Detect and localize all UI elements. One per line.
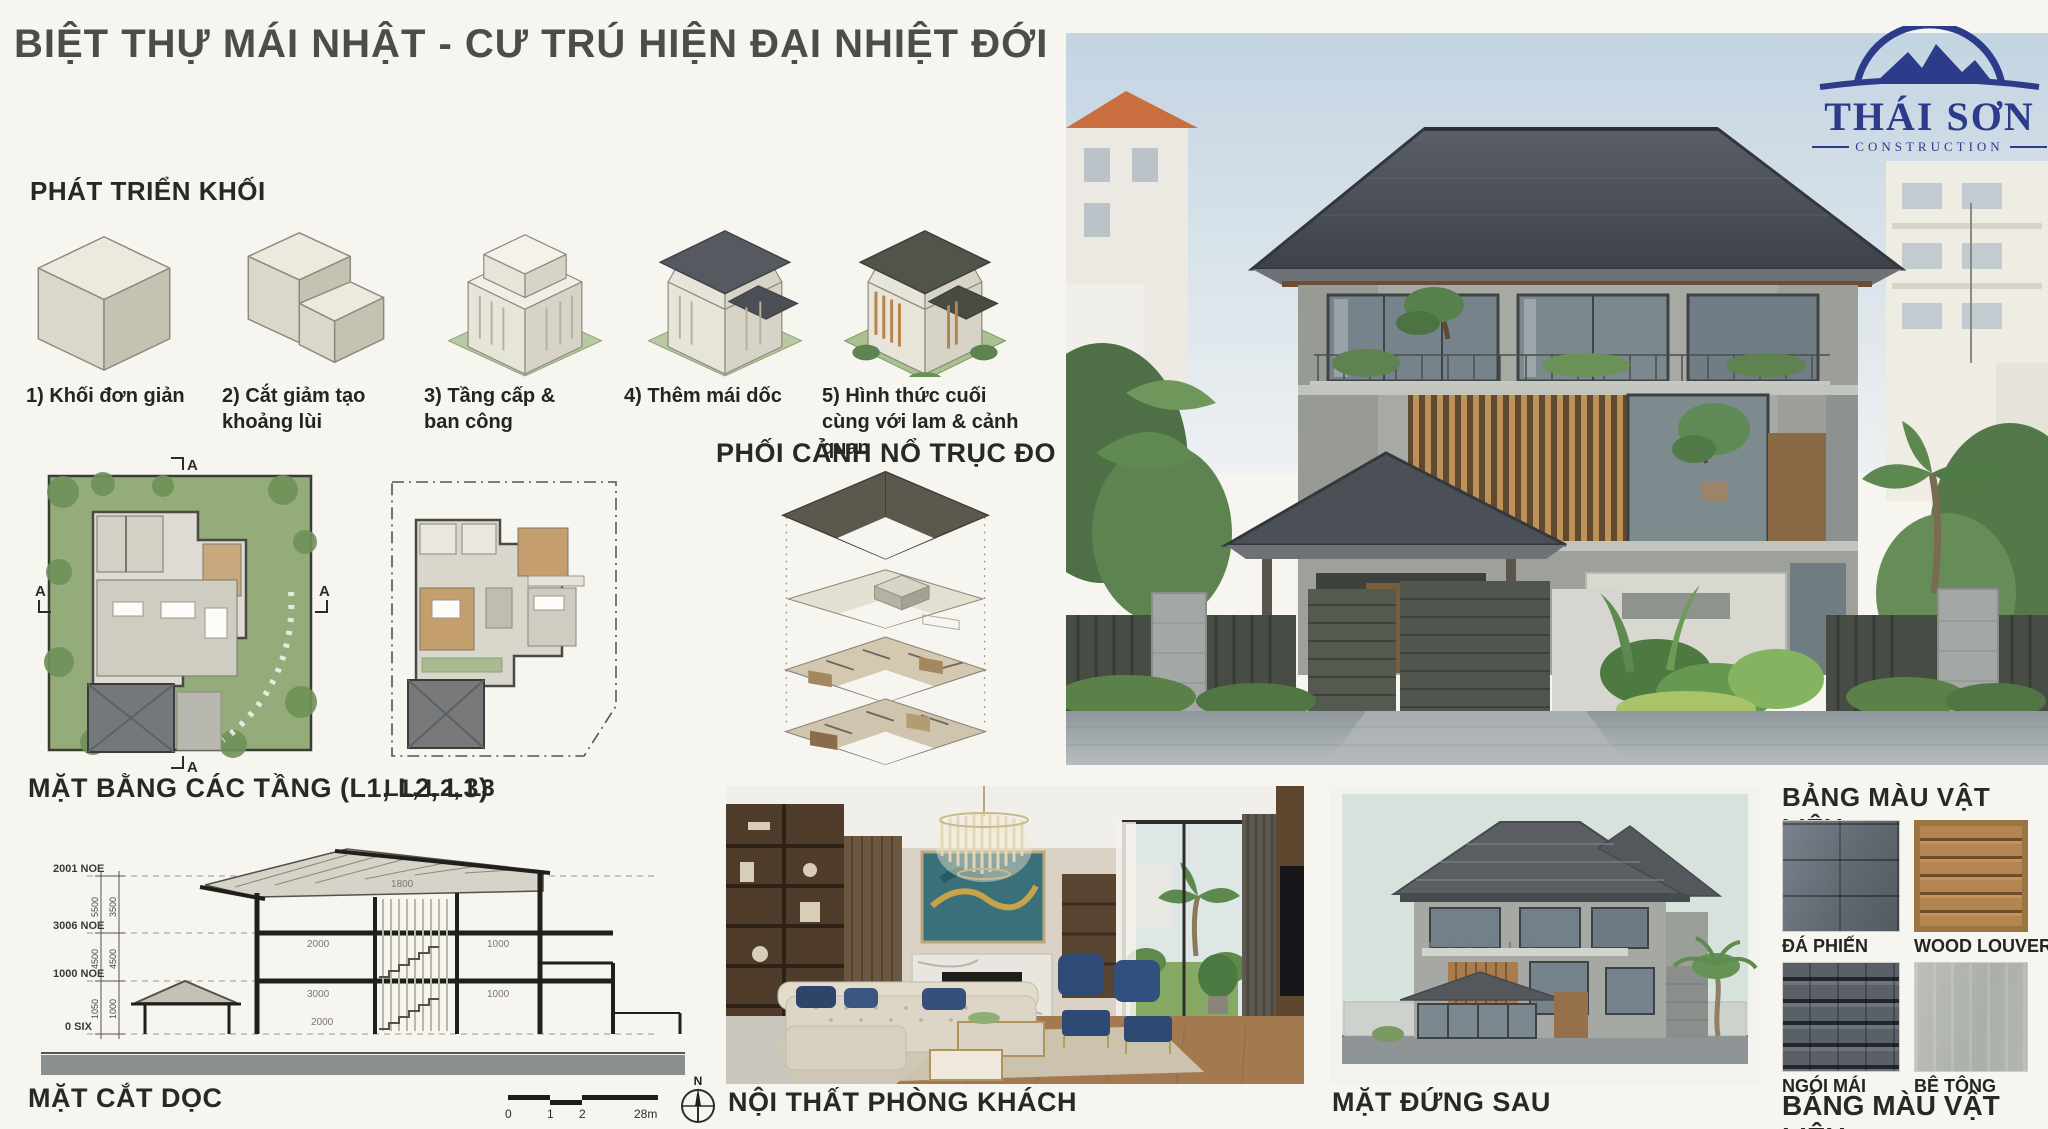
svg-text:28m: 28m xyxy=(634,1107,657,1121)
site-plan-drawing: A A A A xyxy=(33,452,333,774)
mass-step-1-caption: 1) Khối đơn giản xyxy=(26,383,196,409)
mass-step-1-diagram xyxy=(20,225,188,377)
mass-step-3-diagram xyxy=(440,225,608,377)
rear-elevation-drawing xyxy=(1330,786,1760,1084)
svg-text:4500: 4500 xyxy=(108,949,118,969)
material-swatch-roof-tile xyxy=(1782,962,1900,1072)
section-drawing: 2001 NOE 3006 NOE 1000 NOE 0 SIX 5500 45… xyxy=(35,843,695,1083)
svg-text:1000: 1000 xyxy=(487,939,510,950)
mass-development-heading: PHÁT TRIỂN KHỐI xyxy=(30,176,266,207)
scale-bar: 0 1 2 28m xyxy=(500,1085,670,1125)
floor-plans-sublabel: L1, L2, L3 xyxy=(384,775,495,803)
interior-photo xyxy=(726,786,1304,1084)
mass-step-2-caption: 2) Cắt giảm tạo khoảng lùi xyxy=(222,383,372,435)
logo-name: THÁI SƠN xyxy=(1812,97,2047,137)
svg-text:5500: 5500 xyxy=(90,897,100,917)
svg-text:A: A xyxy=(187,759,198,774)
exploded-axon-drawing xyxy=(738,468,1033,768)
svg-text:3000: 3000 xyxy=(307,989,330,1000)
company-logo: THÁI SƠN CONSTRUCTION xyxy=(1812,26,2047,155)
svg-text:3006 NOE: 3006 NOE xyxy=(53,920,104,932)
svg-text:2000: 2000 xyxy=(307,939,330,950)
section-label: MẶT CẮT DỌC xyxy=(28,1083,222,1114)
material-swatch-slate xyxy=(1782,820,1900,932)
mass-step-4-caption: 4) Thêm mái dốc xyxy=(624,383,824,409)
svg-text:0: 0 xyxy=(505,1107,512,1121)
material-swatch-concrete xyxy=(1914,962,2028,1072)
svg-text:N: N xyxy=(694,1074,703,1088)
exploded-axon-heading: PHỐI CẢNH NỔ TRỤC ĐO xyxy=(716,438,1056,469)
svg-text:0 SIX: 0 SIX xyxy=(65,1021,93,1033)
material-label-wood-louvers: WOOD LOUVERS xyxy=(1914,936,2048,957)
rear-elevation-label: MẶT ĐỨNG SAU xyxy=(1332,1087,1551,1118)
svg-text:3500: 3500 xyxy=(108,897,118,917)
page-title: BIỆT THỰ MÁI NHẬT - CƯ TRÚ HIỆN ĐẠI NHIỆ… xyxy=(14,22,1048,67)
logo-subtitle: CONSTRUCTION xyxy=(1812,139,2047,155)
section-ground xyxy=(41,1055,685,1075)
svg-text:4500: 4500 xyxy=(90,949,100,969)
mass-step-3-caption: 3) Tầng cấp & ban công xyxy=(424,383,559,435)
material-swatch-wood-louvers xyxy=(1914,820,2028,932)
section-dim-labels: 5500 4500 1050 3500 4500 1000 xyxy=(90,897,118,1019)
svg-text:A: A xyxy=(319,583,330,600)
svg-text:2001 NOE: 2001 NOE xyxy=(53,863,104,875)
upper-floor-plan-drawing xyxy=(378,468,630,770)
svg-text:A: A xyxy=(35,583,46,600)
svg-text:2000: 2000 xyxy=(311,1017,334,1028)
north-compass-icon: N xyxy=(676,1074,720,1128)
material-label-slate: ĐÁ PHIẾN xyxy=(1782,936,1868,957)
mountain-logo-icon xyxy=(1812,26,2047,92)
section-inner-dims: 1800 2000 1000 3000 1000 2000 xyxy=(307,879,510,1028)
svg-text:1050: 1050 xyxy=(90,999,100,1019)
svg-text:1: 1 xyxy=(547,1107,554,1121)
svg-text:1000: 1000 xyxy=(108,999,118,1019)
svg-text:A: A xyxy=(187,457,198,474)
svg-text:1800: 1800 xyxy=(391,879,414,890)
mass-step-4-diagram xyxy=(640,225,808,377)
svg-text:2: 2 xyxy=(579,1107,586,1121)
mass-step-5-diagram xyxy=(840,225,1008,377)
mass-step-2-diagram xyxy=(230,225,398,377)
presentation-board: BIỆT THỰ MÁI NHẬT - CƯ TRÚ HIỆN ĐẠI NHIỆ… xyxy=(0,0,2048,1129)
interior-label: NỘI THẤT PHÒNG KHÁCH xyxy=(728,1087,1077,1118)
materials-heading-bottom: BẢNG MÀU VẬT LIỆU xyxy=(1782,1090,2048,1129)
svg-text:1000: 1000 xyxy=(487,989,510,1000)
